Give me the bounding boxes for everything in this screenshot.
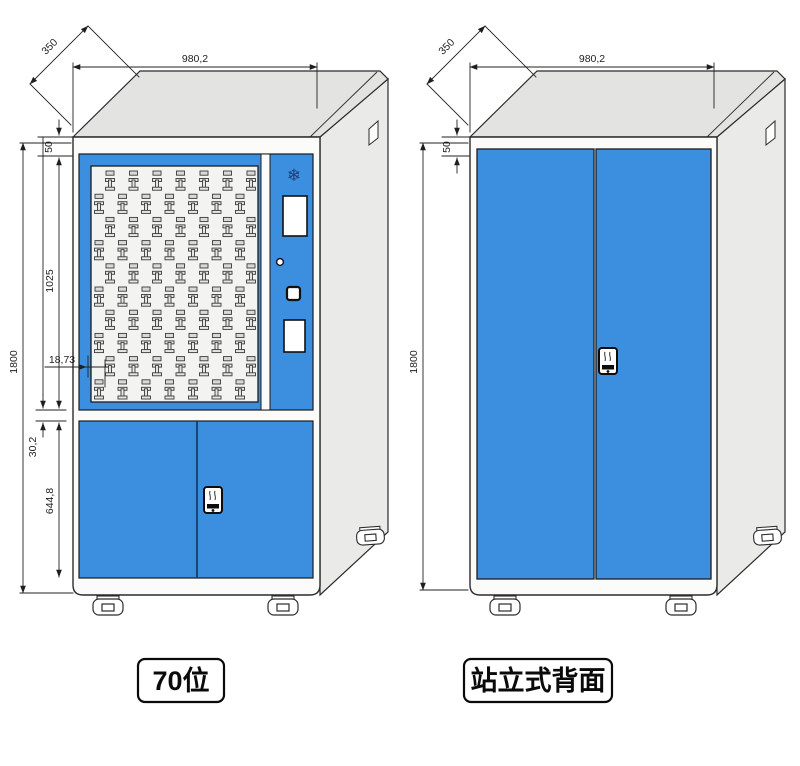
dim-front-lower-height: 644,8 xyxy=(44,488,56,514)
key-position xyxy=(200,171,208,175)
caption-front: 70位 xyxy=(138,659,224,702)
key-position xyxy=(153,264,161,268)
key-position xyxy=(200,264,208,268)
key-position xyxy=(200,187,209,190)
key-position xyxy=(189,210,198,213)
key-position xyxy=(106,264,114,268)
key-position xyxy=(236,333,244,337)
key-position xyxy=(200,234,209,237)
caption-rear-label: 站立式背面 xyxy=(471,665,606,696)
key-position xyxy=(142,350,151,353)
key-position xyxy=(247,217,255,221)
key-position xyxy=(200,310,208,314)
key-position xyxy=(224,264,232,268)
key-position xyxy=(189,333,197,337)
key-position xyxy=(95,350,104,353)
dim-front-total-height: 1800 xyxy=(8,350,20,374)
key-position xyxy=(223,187,232,190)
key-position xyxy=(236,194,244,198)
indicator-light xyxy=(277,259,284,266)
key-position xyxy=(247,280,256,283)
key-position xyxy=(153,326,162,329)
dim-front-depth: 350 xyxy=(39,36,60,57)
key-position xyxy=(165,396,174,399)
key-position xyxy=(142,210,151,213)
caster-front-left xyxy=(93,596,123,615)
key-position xyxy=(118,350,127,353)
key-position xyxy=(176,234,185,237)
key-position xyxy=(247,373,256,376)
rear-caster-side xyxy=(753,526,782,545)
key-position xyxy=(153,217,161,221)
key-position xyxy=(95,257,104,260)
key-position xyxy=(130,217,138,221)
key-position xyxy=(176,326,185,329)
key-position xyxy=(236,287,244,291)
key-position xyxy=(200,326,209,329)
key-position xyxy=(118,396,127,399)
key-position xyxy=(106,171,114,175)
key-position xyxy=(177,310,185,314)
key-position xyxy=(165,257,174,260)
key-position xyxy=(142,241,150,245)
key-position xyxy=(142,194,150,198)
dim-front-mid-gap: 30,2 xyxy=(27,437,39,458)
key-position xyxy=(177,264,185,268)
key-position xyxy=(129,326,138,329)
key-position xyxy=(142,303,151,306)
key-position xyxy=(130,310,138,314)
key-position xyxy=(129,280,138,283)
key-position xyxy=(142,333,150,337)
key-position xyxy=(153,310,161,314)
front-view: ❄ xyxy=(73,71,388,615)
key-position xyxy=(106,280,115,283)
key-position xyxy=(200,357,208,361)
key-position xyxy=(166,380,174,384)
key-position xyxy=(129,373,138,376)
key-position xyxy=(189,287,197,291)
key-position xyxy=(189,380,197,384)
key-position xyxy=(118,257,127,260)
key-position xyxy=(212,350,221,353)
key-position xyxy=(223,326,232,329)
card-reader xyxy=(284,320,305,352)
dim-rear-depth: 350 xyxy=(436,36,457,57)
key-position xyxy=(247,171,255,175)
caption-front-label: 70位 xyxy=(152,665,209,696)
key-position xyxy=(119,380,127,384)
key-position xyxy=(213,333,221,337)
rear-view xyxy=(470,71,785,615)
key-position xyxy=(106,357,114,361)
key-position xyxy=(95,287,103,291)
key-position xyxy=(95,333,103,337)
dim-rear-width: 980,2 xyxy=(579,53,605,65)
key-position xyxy=(153,373,162,376)
key-position xyxy=(247,326,256,329)
key-position xyxy=(213,194,221,198)
key-position xyxy=(106,326,115,329)
key-position xyxy=(176,187,185,190)
key-position xyxy=(165,303,174,306)
dim-front-upper-height: 1025 xyxy=(44,269,56,293)
rear-door-left xyxy=(477,149,594,579)
key-position xyxy=(189,396,198,399)
key-position xyxy=(119,194,127,198)
key-position xyxy=(236,350,245,353)
key-position xyxy=(200,217,208,221)
key-position xyxy=(165,210,174,213)
key-position xyxy=(153,357,161,361)
key-position xyxy=(177,217,185,221)
front-door-lock xyxy=(204,487,222,513)
key-position xyxy=(236,210,245,213)
key-position xyxy=(106,310,114,314)
technical-drawing-canvas: ❄ 980,2 350 50 1025 xyxy=(0,0,800,766)
caption-rear: 站立式背面 xyxy=(464,659,612,702)
key-position xyxy=(189,194,197,198)
caster-side xyxy=(356,526,385,545)
key-position xyxy=(236,257,245,260)
key-position xyxy=(223,234,232,237)
key-position xyxy=(247,234,256,237)
rear-door-lock xyxy=(599,348,617,374)
key-position xyxy=(106,187,115,190)
key-position xyxy=(176,280,185,283)
key-position xyxy=(119,241,127,245)
key-position xyxy=(130,264,138,268)
key-position xyxy=(247,264,255,268)
key-position xyxy=(176,373,185,376)
key-position xyxy=(142,287,150,291)
key-position xyxy=(247,310,255,314)
key-position xyxy=(236,396,245,399)
key-position xyxy=(223,373,232,376)
key-position xyxy=(142,396,151,399)
key-position xyxy=(106,217,114,221)
key-position xyxy=(118,210,127,213)
key-position xyxy=(95,380,103,384)
key-position xyxy=(212,257,221,260)
panel-separator-strip xyxy=(261,154,270,410)
key-position xyxy=(200,280,209,283)
key-position xyxy=(130,357,138,361)
key-position xyxy=(142,380,150,384)
key-position xyxy=(153,171,161,175)
key-return-button xyxy=(287,287,300,300)
key-position xyxy=(142,257,151,260)
key-position xyxy=(129,234,138,237)
key-position xyxy=(165,350,174,353)
key-position xyxy=(95,210,104,213)
front-view-side-panel xyxy=(320,79,388,595)
key-position xyxy=(189,350,198,353)
key-position xyxy=(236,380,244,384)
key-position xyxy=(95,194,103,198)
key-position xyxy=(130,171,138,175)
key-position xyxy=(119,287,127,291)
display-screen xyxy=(283,196,307,236)
key-position xyxy=(213,380,221,384)
front-lower-doors xyxy=(79,421,313,578)
key-position xyxy=(95,303,104,306)
key-board xyxy=(91,166,258,402)
key-position xyxy=(166,333,174,337)
key-position xyxy=(189,257,198,260)
dim-front-key-inset: 18,73 xyxy=(49,354,75,366)
rear-caster-right xyxy=(666,596,696,615)
key-position xyxy=(153,234,162,237)
rear-view-side-panel xyxy=(717,79,785,595)
key-position xyxy=(247,187,256,190)
key-position xyxy=(177,171,185,175)
key-position xyxy=(213,287,221,291)
key-position xyxy=(166,194,174,198)
caster-front-right xyxy=(268,596,298,615)
key-position xyxy=(177,357,185,361)
key-position xyxy=(212,396,221,399)
dim-rear-total-height: 1800 xyxy=(408,350,420,374)
key-position xyxy=(213,241,221,245)
snowflake-icon: ❄ xyxy=(287,166,301,185)
key-position xyxy=(200,373,209,376)
key-position xyxy=(129,187,138,190)
key-position xyxy=(223,280,232,283)
key-position xyxy=(224,171,232,175)
key-position xyxy=(236,303,245,306)
key-position xyxy=(247,357,255,361)
key-position xyxy=(212,210,221,213)
key-position xyxy=(224,310,232,314)
key-position xyxy=(166,287,174,291)
key-position xyxy=(95,396,104,399)
key-position xyxy=(166,241,174,245)
key-position xyxy=(119,333,127,337)
key-position xyxy=(224,217,232,221)
key-position xyxy=(224,357,232,361)
key-position xyxy=(189,303,198,306)
dim-front-width: 980,2 xyxy=(182,53,208,65)
key-position xyxy=(95,241,103,245)
key-position xyxy=(236,241,244,245)
key-position xyxy=(106,373,115,376)
key-position xyxy=(118,303,127,306)
rear-caster-left xyxy=(490,596,520,615)
key-position xyxy=(106,234,115,237)
key-position xyxy=(153,187,162,190)
key-position xyxy=(212,303,221,306)
key-position xyxy=(153,280,162,283)
key-position xyxy=(189,241,197,245)
